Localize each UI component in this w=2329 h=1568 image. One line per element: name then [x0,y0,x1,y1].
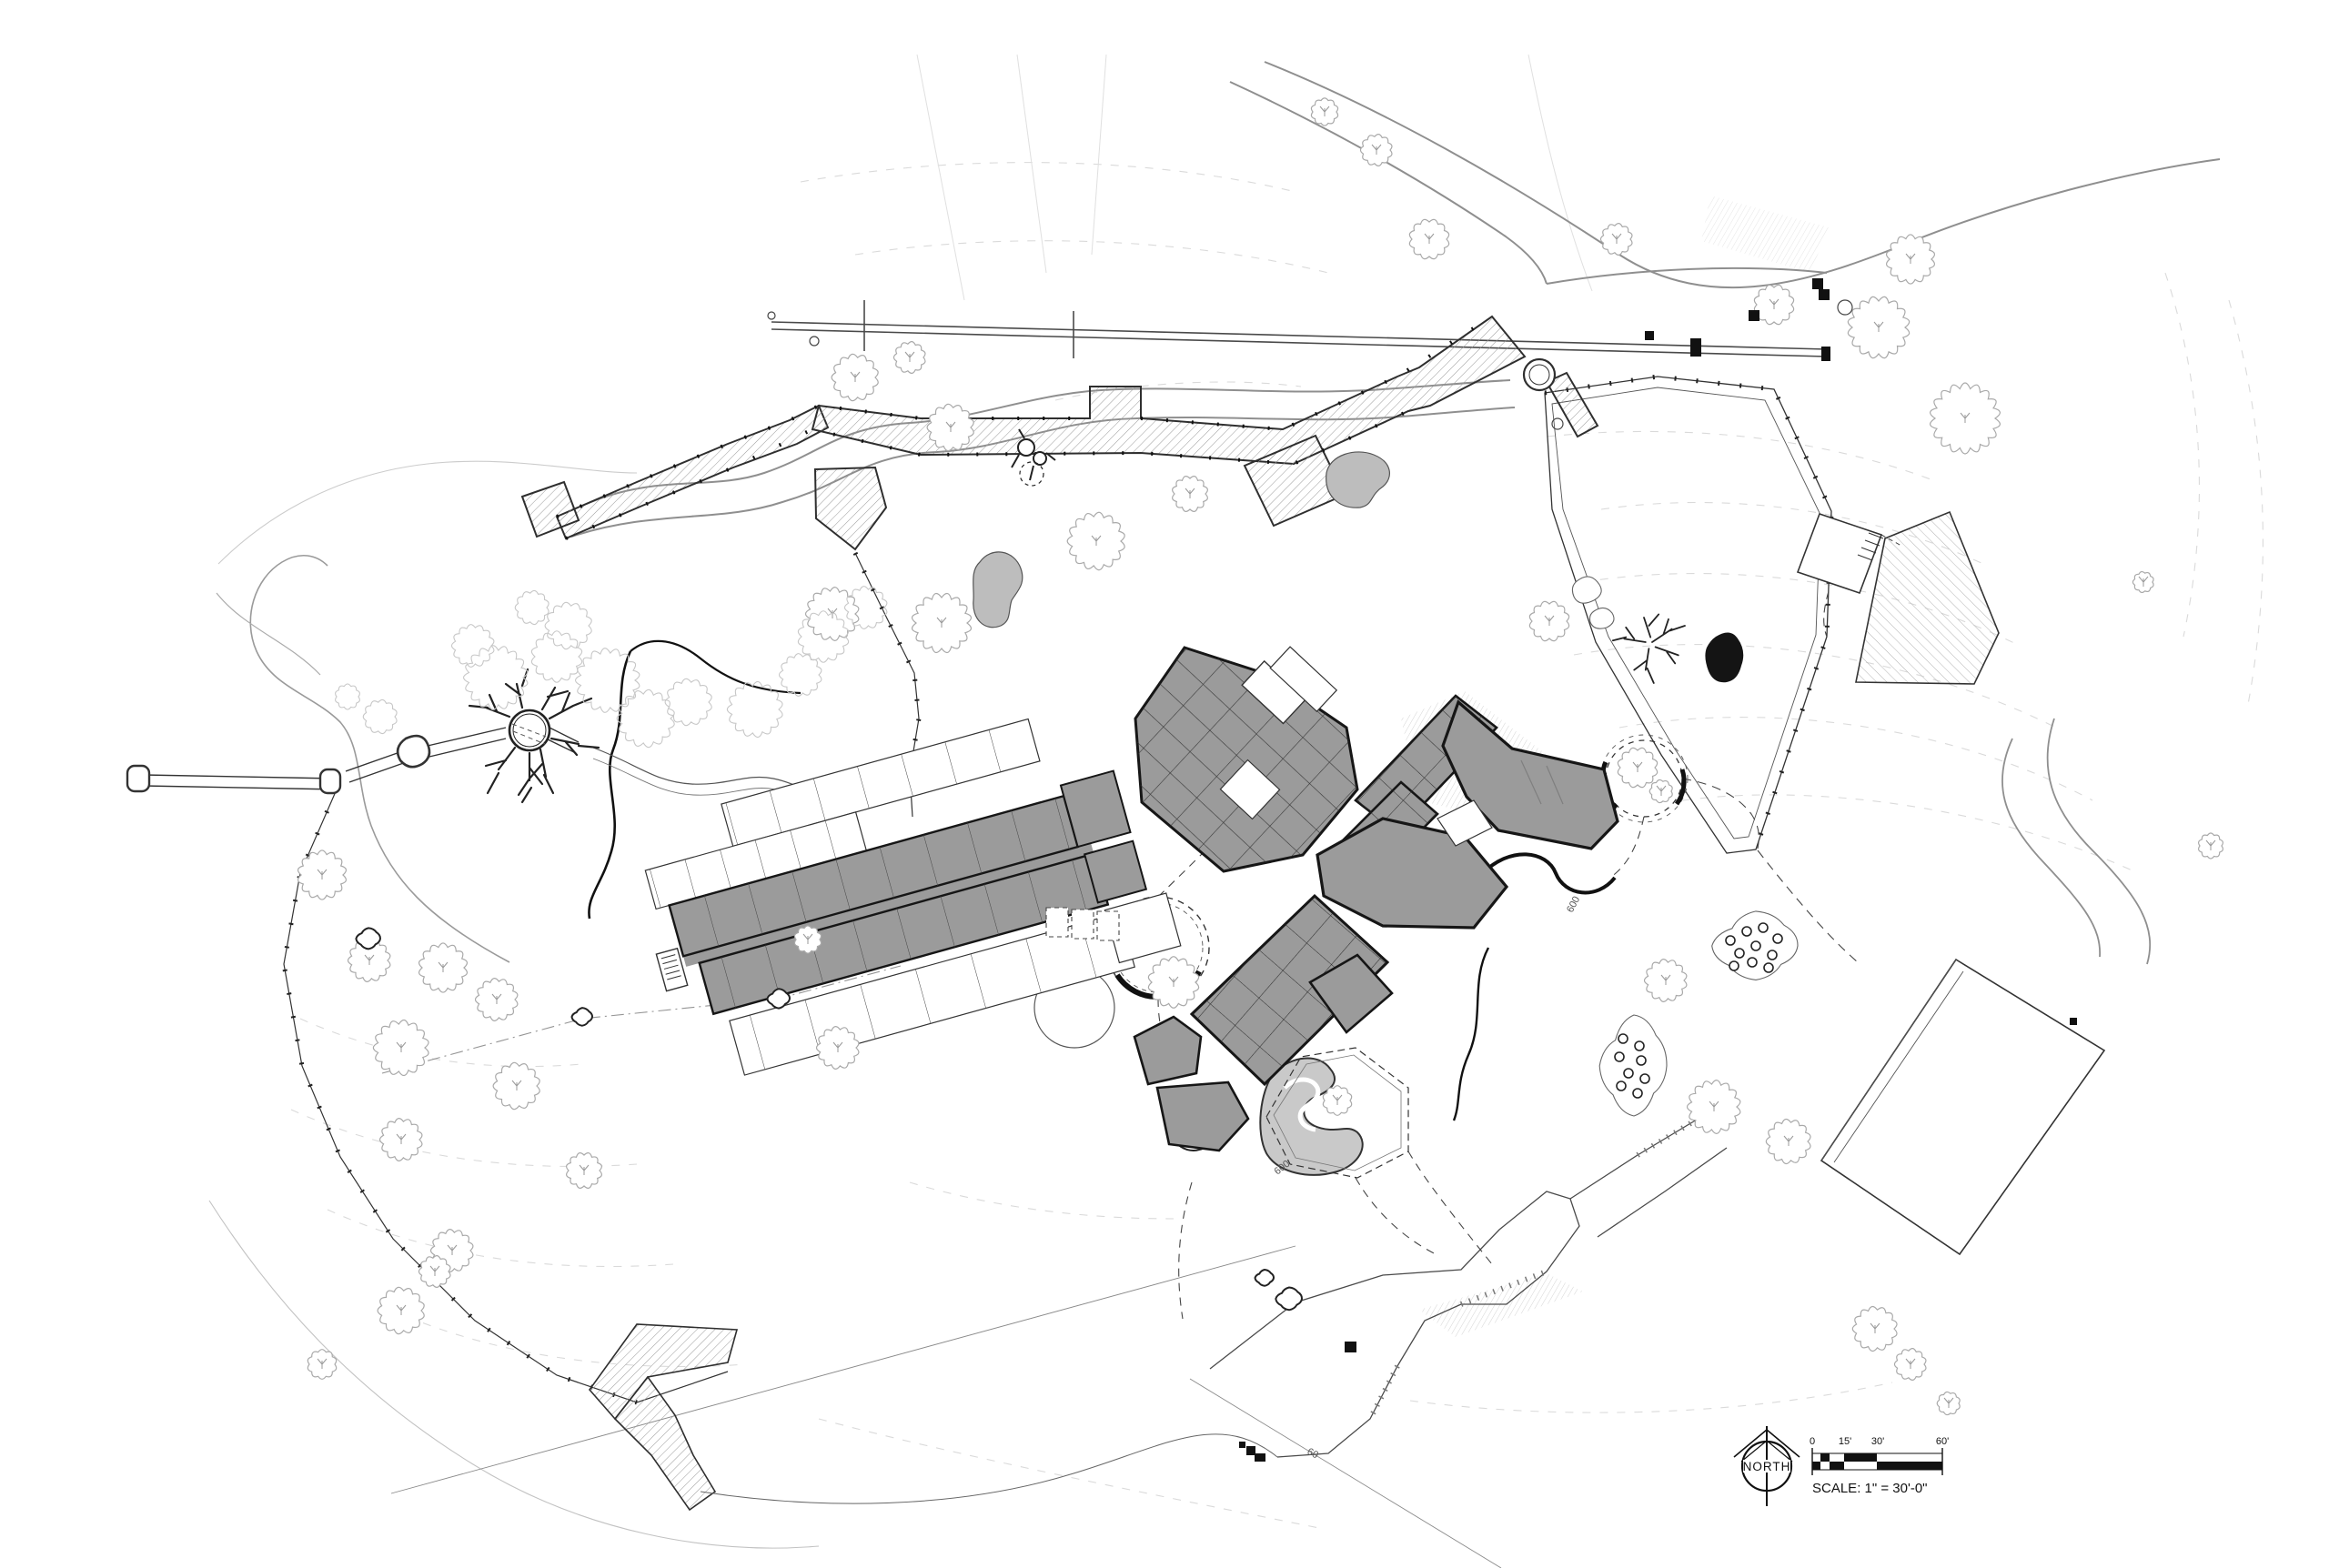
roads [571,62,2220,537]
canopy [452,625,494,668]
grove-dot [1735,949,1744,958]
canopy [363,699,397,733]
post-marker [2070,1018,2077,1025]
scale-segment [1820,1453,1830,1462]
scale-segment [1812,1462,1820,1470]
grove-dot [1748,958,1757,967]
canopy [665,678,711,725]
grove-dot [1726,936,1735,945]
building-cluster-dining [1317,696,1618,928]
grove-dot [1640,1074,1649,1083]
scale-tick-60: 60' [1936,1436,1949,1447]
boulder [1255,1270,1275,1286]
grove-bed [1599,1015,1667,1116]
canopy [617,689,674,747]
boulder [1275,1288,1302,1311]
post-marker [1812,278,1823,289]
canopy [515,590,549,624]
post-marker [1690,338,1701,357]
canopy [576,648,640,713]
north-label: NORTH [1743,1460,1791,1473]
canopy [545,602,591,648]
pondlets [1572,577,1614,628]
scale-segment [1830,1462,1844,1470]
grove-dot [1768,950,1777,960]
planting-groves [1599,911,1798,1116]
canopy [464,646,528,710]
post-marker [1749,310,1759,321]
boardwalk [522,317,1598,549]
scale-bar: 0 15' 30' 60' SCALE: 1" = 30'-0" [1810,1436,1949,1496]
pond-south-deck [1260,1059,1362,1175]
grove-dot [1764,963,1773,972]
grove-dot [1615,1052,1624,1061]
site-plan-drawing: 60060060 NORTH 0 15' 30' 60' SCALE: 1" =… [0,0,2329,1568]
grove-dot [1617,1081,1626,1091]
hub-circle [509,710,549,750]
building-west-complex [622,696,1183,1089]
grove-dot [1751,941,1760,950]
small-marker [810,337,819,346]
small-marker [1838,300,1852,315]
post-marker [1819,289,1830,300]
drainage-lines [917,55,1592,300]
grove-dot [1729,961,1739,970]
small-marker [1552,418,1563,429]
site-plan-sheet: 60060060 NORTH 0 15' 30' 60' SCALE: 1" =… [0,0,2329,1568]
antler-sculpture-meadow [1613,614,1685,683]
pond-meadow [973,552,1023,628]
building-cluster-north [1135,647,1357,871]
ramp-structure [590,1324,737,1510]
parking-pads [1046,908,1119,940]
canopy [531,631,581,683]
boulder-dark [1705,632,1743,682]
boardwalk-node [1524,359,1555,390]
post-marker [1645,331,1654,340]
grove-dot [1635,1041,1644,1050]
grove-dot [1624,1069,1633,1078]
scale-segment [1877,1462,1942,1470]
grove-dot [1742,927,1751,936]
grove-dot [1759,923,1768,932]
contour-label: 60 [1306,1446,1320,1461]
grove-dot [1773,934,1782,943]
small-markers [768,300,1852,429]
post-marker [1255,1453,1265,1462]
scale-tick-30: 30' [1871,1436,1884,1447]
grove-dot [1637,1056,1646,1065]
survey-lines [382,966,1501,1568]
scale-label: SCALE: 1" = 30'-0" [1812,1481,1928,1496]
building-event-pavilion [1821,719,2150,1254]
grove-dot [1633,1089,1642,1098]
grove-dot [1618,1034,1628,1043]
scale-tick-15: 15' [1839,1436,1851,1447]
south-walkways [701,1111,1727,1503]
scale-tick-0: 0 [1810,1436,1815,1447]
tree-canopies [336,587,887,748]
small-marker [768,312,775,319]
contour-label: 600 [1565,895,1582,915]
post-marker [1239,1442,1245,1448]
north-arrow: NORTH [1734,1426,1800,1506]
post-marker [1246,1446,1255,1455]
canopy [336,684,360,709]
post-marker [1345,1342,1356,1352]
zipline [771,300,1827,358]
post-marker [1821,347,1830,361]
scale-segment [1844,1453,1877,1462]
pond-north [1326,452,1390,508]
boulder [572,1008,593,1026]
